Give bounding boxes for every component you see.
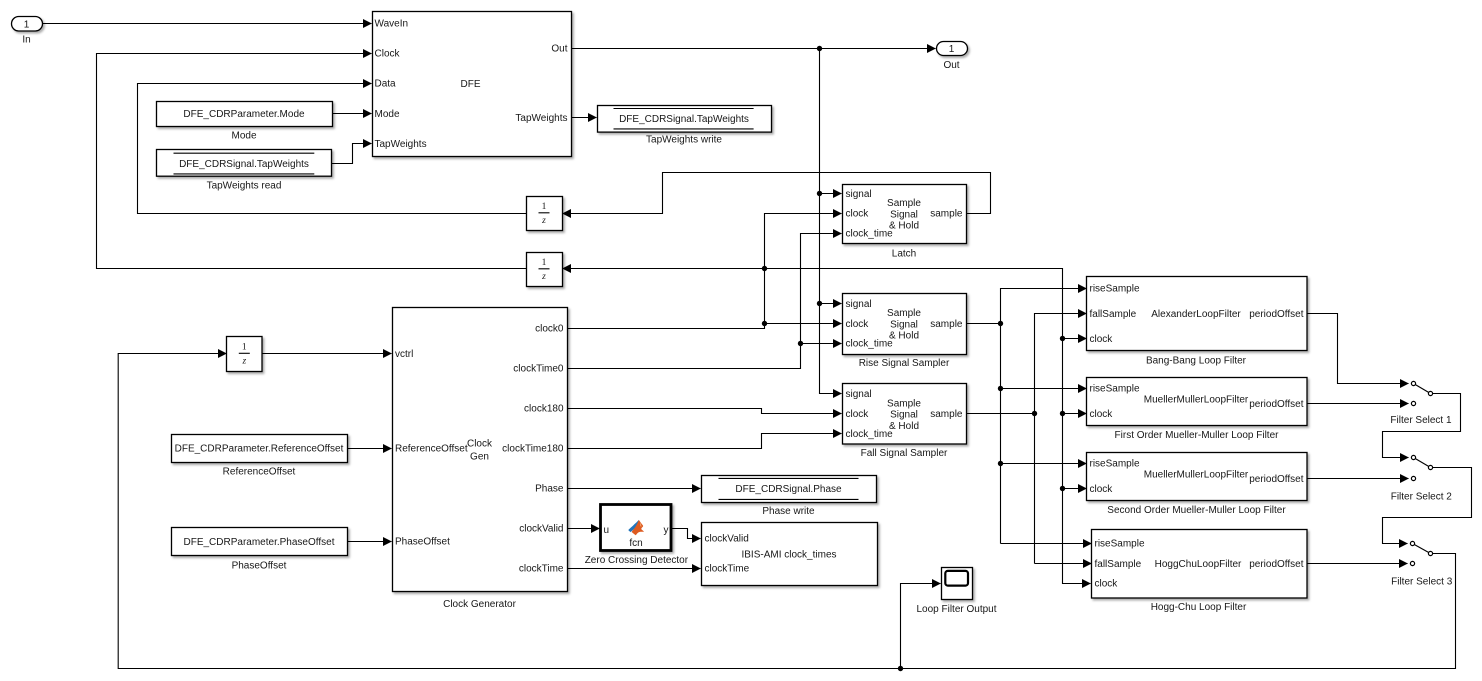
svg-text:Signal: Signal bbox=[890, 319, 918, 330]
svg-text:Signal: Signal bbox=[890, 410, 918, 421]
svg-text:DFE_CDRParameter.Mode: DFE_CDRParameter.Mode bbox=[183, 109, 305, 120]
svg-text:riseSample: riseSample bbox=[1090, 384, 1140, 395]
svg-text:clock_time: clock_time bbox=[846, 229, 894, 240]
svg-text:ReferenceOffset: ReferenceOffset bbox=[395, 444, 468, 455]
svg-text:sample: sample bbox=[930, 209, 963, 220]
svg-text:z: z bbox=[541, 216, 546, 226]
svg-text:clockTime0: clockTime0 bbox=[513, 364, 564, 375]
svg-text:vctrl: vctrl bbox=[395, 349, 413, 360]
svg-text:MuellerMullerLoopFilter: MuellerMullerLoopFilter bbox=[1144, 470, 1249, 481]
svg-text:clock: clock bbox=[1095, 579, 1119, 590]
svg-text:DFE_CDRParameter.PhaseOffset: DFE_CDRParameter.PhaseOffset bbox=[184, 537, 335, 548]
svg-text:fcn: fcn bbox=[629, 538, 642, 549]
svg-text:TapWeights: TapWeights bbox=[515, 113, 567, 124]
svg-text:MuellerMullerLoopFilter: MuellerMullerLoopFilter bbox=[1144, 395, 1249, 406]
svg-text:Rise Signal Sampler: Rise Signal Sampler bbox=[859, 358, 950, 369]
svg-text:periodOffset: periodOffset bbox=[1249, 309, 1304, 320]
svg-text:AlexanderLoopFilter: AlexanderLoopFilter bbox=[1151, 309, 1241, 320]
svg-text:Sample: Sample bbox=[887, 398, 921, 409]
svg-text:DFE_CDRSignal.TapWeights: DFE_CDRSignal.TapWeights bbox=[179, 159, 309, 170]
svg-text:periodOffset: periodOffset bbox=[1249, 559, 1304, 570]
svg-text:y: y bbox=[664, 525, 669, 536]
svg-text:Sample: Sample bbox=[887, 198, 921, 209]
svg-text:Data: Data bbox=[375, 79, 397, 90]
svg-text:signal: signal bbox=[846, 389, 872, 400]
svg-text:Signal: Signal bbox=[890, 209, 918, 220]
svg-text:clockTime180: clockTime180 bbox=[502, 444, 564, 455]
svg-text:fallSample: fallSample bbox=[1090, 309, 1137, 320]
svg-text:Latch: Latch bbox=[892, 248, 916, 259]
svg-text:Loop Filter Output: Loop Filter Output bbox=[916, 604, 996, 615]
svg-text:Fall Signal Sampler: Fall Signal Sampler bbox=[861, 448, 948, 459]
svg-text:Hogg-Chu Loop Filter: Hogg-Chu Loop Filter bbox=[1151, 602, 1247, 613]
svg-text:Sample: Sample bbox=[887, 308, 921, 319]
svg-text:clock: clock bbox=[1090, 484, 1114, 495]
svg-text:1: 1 bbox=[542, 202, 547, 212]
svg-text:DFE_CDRSignal.Phase: DFE_CDRSignal.Phase bbox=[735, 484, 842, 495]
svg-text:clock: clock bbox=[1090, 409, 1114, 420]
svg-text:fallSample: fallSample bbox=[1095, 559, 1142, 570]
svg-text:In: In bbox=[22, 35, 30, 46]
svg-text:clock: clock bbox=[1090, 334, 1114, 345]
svg-text:sample: sample bbox=[930, 319, 963, 330]
svg-text:clock: clock bbox=[846, 319, 870, 330]
svg-text:HoggChuLoopFilter: HoggChuLoopFilter bbox=[1155, 559, 1242, 570]
svg-text:Phase: Phase bbox=[535, 484, 564, 495]
svg-text:u: u bbox=[604, 525, 610, 536]
svg-text:Zero Crossing Detector: Zero Crossing Detector bbox=[585, 555, 689, 566]
svg-text:DFE_CDRSignal.TapWeights: DFE_CDRSignal.TapWeights bbox=[619, 114, 749, 125]
svg-text:Mode: Mode bbox=[375, 109, 400, 120]
svg-text:WaveIn: WaveIn bbox=[375, 19, 409, 30]
svg-text:1: 1 bbox=[542, 258, 547, 268]
svg-text:clock: clock bbox=[846, 209, 870, 220]
svg-text:& Hold: & Hold bbox=[889, 221, 919, 232]
svg-text:Bang-Bang Loop Filter: Bang-Bang Loop Filter bbox=[1146, 356, 1247, 367]
svg-text:clock180: clock180 bbox=[524, 404, 564, 415]
svg-text:Clock: Clock bbox=[467, 439, 493, 450]
svg-text:clockTime: clockTime bbox=[705, 564, 750, 575]
svg-text:signal: signal bbox=[846, 299, 872, 310]
svg-text:clock_time: clock_time bbox=[846, 339, 894, 350]
svg-text:Out: Out bbox=[943, 60, 959, 71]
svg-text:clockTime: clockTime bbox=[519, 564, 564, 575]
svg-text:IBIS-AMI clock_times: IBIS-AMI clock_times bbox=[741, 549, 836, 560]
svg-text:PhaseOffset: PhaseOffset bbox=[395, 537, 450, 548]
svg-text:& Hold: & Hold bbox=[889, 331, 919, 342]
svg-text:& Hold: & Hold bbox=[889, 421, 919, 432]
svg-text:First Order Mueller-Muller Loo: First Order Mueller-Muller Loop Filter bbox=[1115, 430, 1280, 441]
svg-text:periodOffset: periodOffset bbox=[1249, 399, 1304, 410]
svg-text:TapWeights read: TapWeights read bbox=[207, 180, 282, 191]
svg-text:1: 1 bbox=[242, 343, 247, 353]
svg-text:Out: Out bbox=[551, 44, 567, 55]
svg-text:riseSample: riseSample bbox=[1095, 539, 1145, 550]
svg-text:Mode: Mode bbox=[231, 130, 256, 141]
svg-text:ReferenceOffset: ReferenceOffset bbox=[223, 467, 296, 478]
svg-text:TapWeights: TapWeights bbox=[375, 139, 427, 150]
svg-text:sample: sample bbox=[930, 409, 963, 420]
svg-text:Gen: Gen bbox=[470, 452, 489, 463]
svg-text:riseSample: riseSample bbox=[1090, 284, 1140, 295]
svg-text:signal: signal bbox=[846, 189, 872, 200]
svg-text:clock: clock bbox=[846, 409, 870, 420]
svg-text:periodOffset: periodOffset bbox=[1249, 474, 1304, 485]
svg-text:Phase write: Phase write bbox=[762, 506, 815, 517]
svg-text:z: z bbox=[241, 357, 246, 367]
svg-text:Clock Generator: Clock Generator bbox=[443, 599, 516, 610]
svg-text:z: z bbox=[541, 272, 546, 282]
svg-text:Filter Select 1: Filter Select 1 bbox=[1390, 415, 1452, 426]
svg-text:Filter Select 2: Filter Select 2 bbox=[1391, 491, 1453, 502]
svg-text:PhaseOffset: PhaseOffset bbox=[232, 560, 287, 571]
svg-text:Filter Select 3: Filter Select 3 bbox=[1391, 576, 1453, 587]
svg-text:clock_time: clock_time bbox=[846, 429, 894, 440]
svg-text:Second Order Mueller-Muller Lo: Second Order Mueller-Muller Loop Filter bbox=[1107, 505, 1286, 516]
svg-text:Clock: Clock bbox=[375, 48, 401, 59]
svg-text:clockValid: clockValid bbox=[519, 524, 563, 535]
svg-text:clock0: clock0 bbox=[535, 324, 564, 335]
svg-text:clockValid: clockValid bbox=[705, 534, 749, 545]
svg-text:riseSample: riseSample bbox=[1090, 459, 1140, 470]
svg-text:TapWeights write: TapWeights write bbox=[646, 135, 722, 146]
svg-text:1: 1 bbox=[24, 20, 30, 31]
svg-text:DFE_CDRParameter.ReferenceOffs: DFE_CDRParameter.ReferenceOffset bbox=[175, 444, 344, 455]
svg-text:1: 1 bbox=[949, 44, 955, 55]
svg-text:DFE: DFE bbox=[461, 79, 481, 90]
